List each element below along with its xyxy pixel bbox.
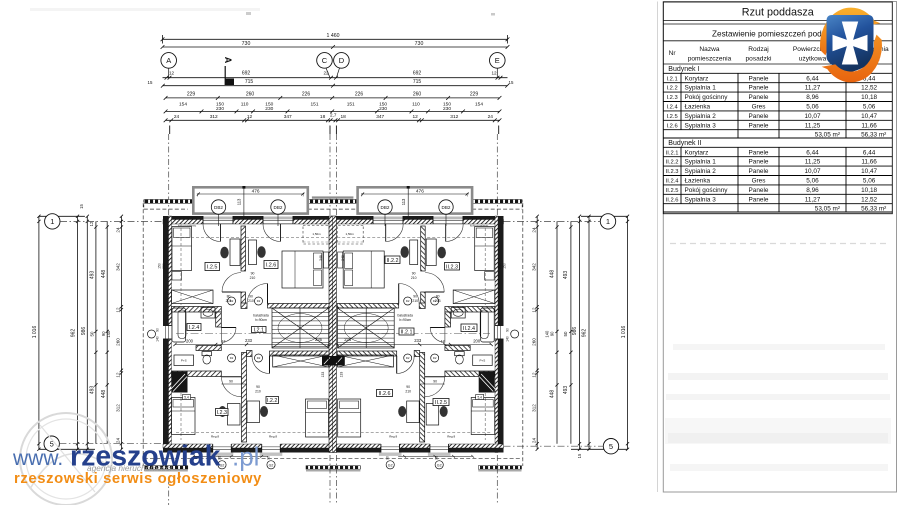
svg-text:493: 493: [563, 386, 569, 395]
svg-text:200: 200: [473, 339, 481, 344]
svg-text:Korytarz: Korytarz: [685, 75, 709, 82]
svg-text:12: 12: [413, 114, 419, 120]
svg-text:12: 12: [116, 372, 121, 378]
svg-text:90: 90: [505, 328, 509, 332]
svg-text:G2: G2: [437, 463, 442, 467]
svg-text:150: 150: [158, 263, 162, 269]
svg-text:962: 962: [71, 329, 77, 338]
svg-text:Korytarz: Korytarz: [685, 149, 709, 156]
svg-text:151: 151: [347, 101, 355, 107]
svg-text:posadzki: posadzki: [745, 56, 772, 63]
svg-text:150: 150: [503, 263, 507, 269]
svg-text:692: 692: [413, 71, 422, 77]
svg-text:Reg 8: Reg 8: [269, 435, 277, 439]
svg-text:II.2.1: II.2.1: [401, 330, 413, 336]
svg-text:448: 448: [101, 270, 107, 279]
svg-text:5: 5: [609, 442, 613, 451]
svg-text:476: 476: [252, 188, 260, 194]
svg-text:90: 90: [256, 385, 260, 389]
svg-text:226: 226: [344, 337, 352, 342]
svg-text:140: 140: [156, 336, 160, 342]
svg-text:230: 230: [443, 106, 451, 112]
svg-text:Rodzaj: Rodzaj: [748, 46, 769, 53]
svg-text:476: 476: [416, 188, 424, 194]
svg-text:D2: D2: [406, 299, 410, 303]
svg-text:1: 1: [606, 217, 610, 226]
svg-text:226: 226: [355, 91, 364, 97]
svg-text:140: 140: [106, 330, 111, 338]
svg-text:347: 347: [376, 114, 384, 120]
svg-text:Panele: Panele: [749, 113, 769, 120]
svg-text:348: 348: [341, 255, 345, 261]
svg-text:Reg 8: Reg 8: [211, 435, 219, 439]
svg-text:22: 22: [323, 71, 329, 76]
svg-text:24: 24: [174, 114, 180, 120]
svg-text:6,44: 6,44: [806, 75, 819, 82]
svg-text:Pokój gościnny: Pokój gościnny: [685, 187, 729, 194]
svg-text:12: 12: [89, 221, 94, 226]
svg-text:balustrada: balustrada: [397, 314, 413, 318]
svg-text:D2: D2: [433, 356, 437, 360]
svg-text:I.2.2: I.2.2: [267, 398, 278, 404]
svg-text:D2: D2: [230, 299, 234, 303]
svg-text:I.2.5: I.2.5: [207, 265, 218, 271]
svg-text:P+S: P+S: [480, 359, 486, 363]
svg-text:90: 90: [413, 295, 417, 299]
svg-text:226: 226: [302, 91, 311, 97]
svg-text:210: 210: [412, 299, 418, 303]
svg-text:Panele: Panele: [749, 94, 769, 101]
svg-text:Łazienka: Łazienka: [685, 104, 711, 111]
svg-text:II.2.6: II.2.6: [379, 391, 391, 397]
svg-text:260: 260: [531, 338, 536, 346]
svg-text:rzeszowski serwis ogłoszeniowy: rzeszowski serwis ogłoszeniowy: [14, 471, 262, 487]
svg-text:90: 90: [386, 456, 390, 460]
svg-text:I.2.2: I.2.2: [666, 86, 677, 92]
svg-text:11,27: 11,27: [805, 196, 821, 203]
svg-text:90: 90: [249, 295, 253, 299]
svg-text:I.2.1: I.2.1: [666, 76, 677, 82]
svg-text:8,96: 8,96: [806, 94, 819, 101]
svg-text:Sypialnia 2: Sypialnia 2: [685, 113, 717, 120]
svg-text:I.2.1: I.2.1: [254, 328, 265, 334]
svg-text:90: 90: [251, 272, 255, 276]
svg-text:użytkowa: użytkowa: [799, 56, 827, 63]
svg-text:Gres: Gres: [752, 178, 766, 185]
svg-text:12: 12: [441, 340, 445, 344]
svg-text:Sypialnia 1: Sypialnia 1: [685, 159, 717, 166]
svg-text:154: 154: [475, 101, 483, 107]
svg-text:715: 715: [245, 79, 254, 85]
svg-text:Reg 8: Reg 8: [389, 435, 397, 439]
svg-text:230: 230: [216, 106, 224, 112]
svg-text:110: 110: [241, 101, 249, 107]
svg-text:II.2.6: II.2.6: [666, 197, 679, 203]
svg-text:h=90cm: h=90cm: [255, 318, 267, 322]
svg-text:730: 730: [415, 41, 424, 47]
svg-text:I.2.4: I.2.4: [189, 325, 200, 331]
svg-text:50: 50: [89, 331, 94, 336]
svg-text:6,44: 6,44: [806, 149, 819, 156]
svg-text:113: 113: [401, 198, 406, 205]
svg-text:90: 90: [156, 328, 160, 332]
svg-text:Budynek I: Budynek I: [668, 66, 699, 73]
svg-text:DB2: DB2: [442, 205, 451, 210]
svg-text:210: 210: [250, 276, 256, 280]
svg-text:11,66: 11,66: [861, 122, 877, 129]
svg-text:154: 154: [179, 101, 187, 107]
svg-text:1: 1: [50, 217, 54, 226]
svg-text:10,07: 10,07: [805, 113, 821, 120]
svg-text:12: 12: [169, 71, 175, 76]
svg-text:962: 962: [581, 329, 587, 338]
svg-text:II.2.3: II.2.3: [666, 169, 679, 175]
svg-text:1 460: 1 460: [327, 33, 340, 39]
svg-text:448: 448: [549, 270, 555, 279]
svg-text:80: 80: [436, 295, 440, 299]
svg-text:210: 210: [248, 299, 254, 303]
svg-text:I.2.4: I.2.4: [666, 105, 678, 111]
svg-text:DB2: DB2: [381, 205, 390, 210]
svg-text:210: 210: [255, 390, 261, 394]
svg-text:I.2.5: I.2.5: [666, 114, 677, 120]
svg-text:986: 986: [81, 327, 87, 336]
svg-text:986: 986: [572, 327, 578, 336]
svg-text:56,33 m²: 56,33 m²: [861, 131, 886, 138]
svg-text:h=90cm: h=90cm: [399, 318, 411, 322]
svg-text:1 016: 1 016: [621, 326, 627, 339]
svg-text:G2: G2: [269, 463, 274, 467]
svg-text:90: 90: [412, 272, 416, 276]
svg-text:53,05 m²: 53,05 m²: [815, 131, 840, 138]
svg-text:C: C: [322, 56, 328, 65]
svg-text:Łazienka: Łazienka: [685, 178, 711, 185]
svg-text:Sypialnia 2: Sypialnia 2: [685, 168, 717, 175]
svg-text:D2: D2: [230, 356, 234, 360]
svg-text:15: 15: [79, 204, 84, 209]
svg-text:24: 24: [488, 114, 494, 120]
svg-text:53,05 m²: 53,05 m²: [815, 205, 840, 212]
svg-text:łóżko+materac: łóżko+materac: [470, 224, 489, 228]
svg-text:230: 230: [379, 106, 387, 112]
svg-text:10,47: 10,47: [861, 168, 877, 175]
svg-text:15: 15: [509, 80, 514, 85]
svg-text:Panele: Panele: [749, 159, 769, 166]
svg-text:Sypialnia 1: Sypialnia 1: [685, 85, 717, 92]
svg-text:12,52: 12,52: [861, 85, 877, 92]
svg-text:D2: D2: [433, 299, 437, 303]
svg-text:12: 12: [116, 307, 121, 313]
svg-text:342: 342: [531, 263, 536, 271]
svg-text:II.2.2: II.2.2: [387, 258, 399, 264]
svg-text:10,18: 10,18: [861, 94, 877, 101]
svg-text:230: 230: [162, 263, 166, 269]
svg-text:151: 151: [310, 101, 318, 107]
svg-text:90: 90: [267, 456, 271, 460]
svg-text:II.2.4: II.2.4: [666, 179, 680, 185]
svg-text:Panele: Panele: [749, 122, 769, 129]
svg-text:24: 24: [531, 438, 536, 444]
svg-text:18: 18: [341, 114, 347, 120]
svg-text:12: 12: [531, 372, 536, 378]
svg-text:80: 80: [227, 295, 231, 299]
svg-text:E: E: [495, 56, 500, 65]
svg-text:Sypialnia 3: Sypialnia 3: [685, 122, 717, 129]
svg-text:493: 493: [89, 386, 95, 395]
svg-text:Nr: Nr: [669, 50, 677, 57]
svg-text:12: 12: [531, 307, 536, 313]
svg-text:pomieszczenia: pomieszczenia: [688, 56, 732, 63]
svg-text:260: 260: [116, 338, 121, 346]
svg-text:15: 15: [148, 80, 153, 85]
svg-text:7: 7: [302, 193, 305, 198]
svg-text:.pl: .pl: [232, 442, 259, 472]
svg-text:D: D: [339, 56, 345, 65]
svg-text:140: 140: [545, 330, 550, 338]
svg-text:D2: D2: [257, 299, 261, 303]
svg-text:Sypialnia 3: Sypialnia 3: [685, 196, 717, 203]
svg-text:24: 24: [116, 227, 121, 233]
svg-text:56,33 m²: 56,33 m²: [861, 205, 886, 212]
svg-text:229: 229: [187, 91, 196, 97]
svg-text:260: 260: [246, 91, 255, 97]
svg-text:493: 493: [563, 271, 569, 280]
svg-text:24: 24: [531, 227, 536, 233]
svg-text:G2: G2: [388, 463, 393, 467]
svg-text:II.2.3: II.2.3: [446, 264, 458, 270]
svg-text:6,44: 6,44: [863, 149, 876, 156]
svg-text:133: 133: [339, 372, 343, 378]
svg-text:1,50m: 1,50m: [312, 232, 321, 236]
svg-text:5,06: 5,06: [863, 178, 876, 185]
svg-text:12,52: 12,52: [861, 196, 877, 203]
svg-text:342: 342: [116, 263, 121, 271]
svg-text:10,47: 10,47: [861, 113, 877, 120]
svg-text:Panele: Panele: [749, 85, 769, 92]
svg-text:łóżko+materac: łóżko+materac: [178, 224, 197, 228]
svg-text:Panele: Panele: [749, 149, 769, 156]
svg-text:200: 200: [186, 339, 194, 344]
svg-text:10,07: 10,07: [805, 168, 821, 175]
svg-text:347: 347: [284, 114, 292, 120]
svg-text:II.2.5: II.2.5: [435, 400, 447, 406]
svg-text:113: 113: [237, 198, 242, 205]
svg-text:11,25: 11,25: [805, 159, 821, 166]
svg-text:Pokój gościnny: Pokój gościnny: [685, 94, 729, 101]
svg-text:11,25: 11,25: [805, 122, 821, 129]
svg-text:5,4: 5,4: [477, 395, 482, 399]
svg-text:229: 229: [470, 91, 479, 97]
svg-text:210: 210: [405, 390, 411, 394]
svg-text:Nazwa: Nazwa: [699, 46, 719, 53]
svg-text:133: 133: [321, 372, 325, 378]
svg-text:140: 140: [505, 336, 509, 342]
svg-text:18: 18: [320, 114, 326, 120]
svg-text:II.2.5: II.2.5: [666, 188, 679, 194]
svg-text:730: 730: [242, 41, 251, 47]
svg-text:50: 50: [563, 331, 568, 336]
svg-text:260: 260: [413, 91, 422, 97]
svg-text:715: 715: [413, 79, 422, 85]
svg-text:226: 226: [315, 337, 323, 342]
svg-text:90: 90: [433, 380, 437, 384]
svg-text:II.2.1: II.2.1: [666, 150, 679, 156]
svg-text:448: 448: [549, 390, 555, 399]
svg-text:1 016: 1 016: [32, 326, 38, 339]
svg-text:348: 348: [319, 255, 323, 261]
svg-text:233: 233: [245, 338, 253, 343]
svg-text:DB2: DB2: [274, 205, 283, 210]
svg-text:Reg 8: Reg 8: [447, 435, 455, 439]
svg-text:448: 448: [101, 390, 107, 399]
svg-text:12: 12: [491, 71, 497, 76]
svg-text:balustrada: balustrada: [253, 314, 269, 318]
svg-text:5,06: 5,06: [806, 104, 819, 111]
svg-text:5,06: 5,06: [806, 178, 819, 185]
svg-text:12: 12: [222, 340, 226, 344]
svg-text:15: 15: [577, 453, 582, 458]
svg-text:5,4: 5,4: [184, 395, 189, 399]
svg-text:www.: www.: [12, 447, 63, 470]
svg-text:210: 210: [411, 276, 417, 280]
svg-text:312: 312: [531, 404, 536, 412]
svg-text:312: 312: [116, 404, 121, 412]
svg-text:II.2.2: II.2.2: [666, 160, 679, 166]
svg-text:5,06: 5,06: [863, 104, 876, 111]
svg-text:I.2.3: I.2.3: [666, 95, 677, 101]
svg-text:12: 12: [247, 114, 253, 120]
svg-text:DB2: DB2: [214, 205, 223, 210]
svg-text:493: 493: [89, 271, 95, 280]
svg-text:Gres: Gres: [752, 104, 766, 111]
svg-text:11,66: 11,66: [861, 159, 877, 166]
svg-text:I.2.6: I.2.6: [666, 123, 677, 129]
svg-text:I.2.6: I.2.6: [266, 263, 277, 269]
svg-text:90: 90: [406, 385, 410, 389]
svg-text:90: 90: [549, 331, 554, 336]
svg-text:7: 7: [466, 193, 469, 198]
svg-text:A: A: [166, 56, 171, 65]
svg-text:110: 110: [412, 101, 420, 107]
svg-text:312: 312: [210, 114, 218, 120]
svg-text:Rzut poddasza: Rzut poddasza: [742, 7, 814, 19]
svg-text:8,96: 8,96: [806, 187, 819, 194]
svg-text:Panele: Panele: [749, 196, 769, 203]
svg-text:A: A: [223, 57, 233, 64]
svg-text:312: 312: [450, 114, 458, 120]
svg-text:D2: D2: [257, 356, 261, 360]
svg-text:Panele: Panele: [749, 168, 769, 175]
svg-text:I.2.3: I.2.3: [217, 410, 228, 416]
svg-text:233: 233: [414, 338, 422, 343]
svg-text:II.2.4: II.2.4: [463, 326, 475, 332]
svg-text:90: 90: [229, 380, 233, 384]
svg-text:230: 230: [265, 106, 273, 112]
svg-text:Budynek II: Budynek II: [668, 140, 701, 147]
svg-text:1,50m: 1,50m: [346, 232, 355, 236]
svg-text:Panele: Panele: [749, 75, 769, 82]
svg-text:P+S: P+S: [181, 359, 187, 363]
svg-text:2,7: 2,7: [330, 113, 337, 118]
svg-text:D2: D2: [406, 356, 410, 360]
svg-text:Panele: Panele: [749, 187, 769, 194]
svg-text:11,27: 11,27: [805, 85, 821, 92]
svg-text:692: 692: [242, 71, 251, 77]
svg-text:230: 230: [498, 263, 502, 269]
svg-text:10,18: 10,18: [861, 187, 877, 194]
